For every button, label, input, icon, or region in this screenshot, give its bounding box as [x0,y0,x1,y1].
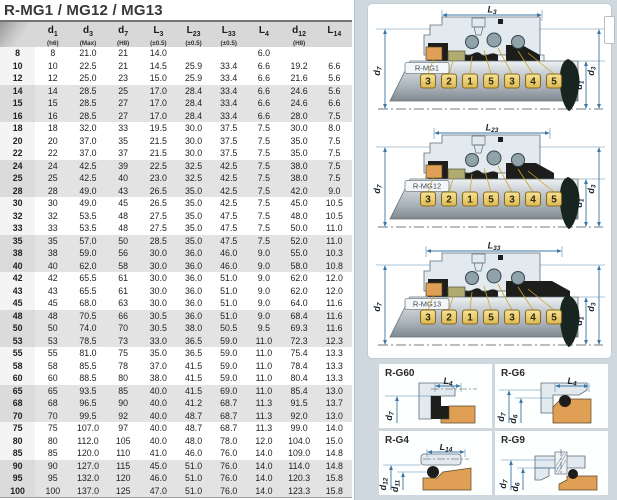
table-cell: 92 [106,410,141,423]
table-cell: 14.0 [246,485,281,498]
table-section: R-MG1 / MG12 / MG13 d1(h6)d3(Max)d7(H8)L… [0,0,354,500]
table-cell: 53 [0,335,35,348]
table-cell: 12 [0,72,35,85]
table-cell: 32.5 [176,160,211,173]
table-cell: 7.5 [246,122,281,135]
table-cell: 93.5 [70,385,105,398]
table-cell: 42.0 [282,185,317,198]
table-cell: 9.0 [246,285,281,298]
table-cell: 11.0 [246,335,281,348]
table-cell: 7.5 [246,185,281,198]
table-row: 606088.58038.041.559.011.080.413.3 [0,372,352,385]
table-cell: 14.0 [246,472,281,485]
table-cell: 76.0 [211,472,246,485]
table-cell: 6.6 [317,60,352,73]
table-cell: 99.5 [70,410,105,423]
column-header: d1(h6) [35,22,70,47]
table-cell: 42.5 [70,160,105,173]
table-cell: 9.0 [317,185,352,198]
part-number: 3 [425,195,431,206]
table-cell: 12.3 [317,335,352,348]
table-cell: 40 [106,172,141,185]
table-cell: 33.4 [211,110,246,123]
table-cell: 27.5 [141,222,176,235]
table-row: 383859.05630.036.046.09.055.010.3 [0,247,352,260]
table-cell: 27 [106,110,141,123]
table-cell: 60 [35,372,70,385]
table-cell: 22 [35,147,70,160]
top-dim-label: L23 [485,123,498,134]
table-cell: 21.6 [282,72,317,85]
table-cell [211,47,246,60]
table-cell: 48.7 [176,410,211,423]
table-cell: 97 [106,422,141,435]
table-cell: 48.7 [176,422,211,435]
table-cell: 15 [35,97,70,110]
table-cell: 20 [0,135,35,148]
table-cell: 14.5 [141,60,176,73]
seat-card-r-g6: R-G6 L4 d7 d6 [495,364,608,428]
table-cell: 74.0 [70,322,105,335]
table-cell: 68.0 [70,297,105,310]
table-cell: 28.0 [282,110,317,123]
svg-text:L4: L4 [443,377,453,387]
table-cell: 35.0 [176,222,211,235]
table-cell: 30.0 [176,122,211,135]
svg-text:d3: d3 [586,184,598,194]
column-header: L3(±0.5) [141,22,176,47]
table-row: 8080112.010540.048.078.012.0104.015.0 [0,435,352,448]
table-cell: 5.6 [317,72,352,85]
table-cell: 70 [35,410,70,423]
table-cell: 15 [0,97,35,110]
table-cell: 9.0 [246,310,281,323]
svg-text:d7: d7 [496,412,508,422]
table-cell: 76.0 [211,447,246,460]
table-cell: 85 [0,447,35,460]
table-row: 9090127.011545.051.076.014.0114.014.8 [0,460,352,473]
table-cell: 22.5 [141,160,176,173]
table-cell: 12.0 [317,272,352,285]
table-cell: 51.0 [211,285,246,298]
table-cell: 28 [35,185,70,198]
table-cell: 41.5 [176,372,211,385]
table-cell: 13.0 [317,410,352,423]
table-cell: 14 [0,85,35,98]
table-row: 323253.54827.535.047.57.548.010.5 [0,210,352,223]
svg-text:d6: d6 [510,482,522,492]
table-body: 8821.02114.06.0101022.52114.525.933.46.6… [0,47,352,498]
table-row: 100100137.012547.051.076.014.0123.315.8 [0,485,352,498]
table-cell: 68.7 [211,410,246,423]
table-cell: 12.0 [246,435,281,448]
table-cell: 35.0 [176,235,211,248]
table-cell: 46.0 [211,247,246,260]
table-cell: 35.0 [176,185,211,198]
table-cell: 15.8 [317,472,352,485]
table-cell: 68.7 [211,397,246,410]
table-row: 505074.07030.538.050.59.569.311.6 [0,322,352,335]
column-header: L33(±0.5) [211,22,246,47]
table-cell: 59.0 [211,360,246,373]
table-cell: 9.0 [246,247,281,260]
table-cell: 7.5 [246,172,281,185]
table-cell: 90 [0,460,35,473]
table-cell: 45.0 [141,460,176,473]
table-cell [317,47,352,60]
table-row: 141428.52517.028.433.46.624.65.6 [0,85,352,98]
table-cell: 38.0 [176,322,211,335]
table-cell: 27 [106,97,141,110]
table-cell: 80.4 [282,372,317,385]
table-cell: 19.2 [282,60,317,73]
table-cell: 17.0 [141,110,176,123]
table-cell: 50.0 [282,222,317,235]
part-number: 1 [467,77,473,88]
table-cell: 42.5 [211,172,246,185]
table-cell: 46.0 [141,472,176,485]
table-cell: 110 [106,447,141,460]
table-cell: 40 [35,260,70,273]
table-cell: 11.0 [317,235,352,248]
table-cell: 58 [106,260,141,273]
column-header [0,22,35,47]
table-cell: 61 [106,285,141,298]
svg-text:d6: d6 [508,414,520,424]
part-number: 3 [509,195,515,206]
table-cell: 28.5 [141,235,176,248]
table-cell: 24.6 [282,85,317,98]
table-cell: 25.9 [176,60,211,73]
table-cell: 33 [0,222,35,235]
table-cell: 30.0 [141,247,176,260]
table-row: 303049.04526.535.042.57.545.010.5 [0,197,352,210]
table-row: 333353.54827.535.047.57.550.011.0 [0,222,352,235]
table-cell: 21 [106,60,141,73]
table-cell: 7.5 [246,147,281,160]
table-cell: 69.0 [211,385,246,398]
table-cell: 13.3 [317,372,352,385]
table-cell: 95 [0,472,35,485]
table-cell: 38.0 [141,372,176,385]
table-cell: 95 [35,472,70,485]
table-row: 8821.02114.06.0 [0,47,352,60]
table-cell: 48 [106,222,141,235]
table-cell: 38 [35,247,70,260]
table-cell: 51.0 [211,310,246,323]
table-cell: 11.0 [246,385,281,398]
table-cell: 68 [35,397,70,410]
table-cell: 14.0 [246,460,281,473]
table-cell: 32 [0,210,35,223]
table-row: 7575107.09740.048.768.711.399.014.0 [0,422,352,435]
table-cell: 36.0 [176,285,211,298]
table-row: 222237.03721.530.037.57.535.07.5 [0,147,352,160]
table-cell: 59.0 [70,247,105,260]
seat-card-r-g9: R-G9 d7 d6 [495,431,608,495]
table-cell: 80 [0,435,35,448]
table-cell: 33.4 [211,72,246,85]
table-cell: 30.0 [176,135,211,148]
table-cell: 12 [35,72,70,85]
table-cell: 15.0 [317,435,352,448]
table-cell: 6.6 [246,85,281,98]
table-cell: 10.5 [317,210,352,223]
column-header: L23(±0.5) [176,22,211,47]
table-cell: 30.0 [141,297,176,310]
table-cell: 75 [0,422,35,435]
column-header: L14 [317,22,352,47]
table-row: 252542.54023.032.542.57.538.07.5 [0,172,352,185]
part-number: 5 [551,313,557,324]
table-cell: 28 [0,185,35,198]
table-cell: 47.5 [211,210,246,223]
table-cell: 19.5 [141,122,176,135]
table-cell: 46.0 [176,447,211,460]
table-cell: 99.0 [282,422,317,435]
table-cell: 50 [106,235,141,248]
table-cell: 30.0 [282,122,317,135]
table-cell: 112.0 [70,435,105,448]
table-cell: 16 [0,110,35,123]
table-cell: 37.0 [70,135,105,148]
table-cell: 22 [0,147,35,160]
part-number: 3 [509,77,515,88]
table-cell: 41.5 [176,360,211,373]
catalog-page: R-MG1 / MG12 / MG13 d1(h6)d3(Max)d7(H8)L… [0,0,617,500]
table-cell: 90 [35,460,70,473]
table-cell: 59.0 [211,372,246,385]
table-cell: 123.3 [282,485,317,498]
table-cell: 65 [35,385,70,398]
table-cell: 30.5 [141,310,176,323]
table-cell: 100 [0,485,35,498]
table-cell: 56 [106,247,141,260]
table-cell: 127.0 [70,460,105,473]
table-row: 202037.03521.530.037.57.535.07.5 [0,135,352,148]
table-cell: 60 [0,372,35,385]
table-cell: 53.5 [70,222,105,235]
table-cell: 137.0 [70,485,105,498]
table-cell: 50 [0,322,35,335]
table-cell: 9.0 [246,272,281,285]
seal-diagram-r-mg13: R-MG13 3215345 L33 d7 d1 d3 [372,241,608,358]
table-cell: 36.0 [176,260,211,273]
table-cell: 49.0 [70,197,105,210]
diagram-label: R-MG12 [412,182,440,191]
table-cell: 33.4 [211,97,246,110]
table-cell: 68 [0,397,35,410]
table-cell: 65.5 [70,285,105,298]
table-cell: 10 [35,60,70,73]
table-row: 121225.02315.025.933.46.621.65.6 [0,72,352,85]
table-cell: 70 [106,322,141,335]
table-cell: 100 [35,485,70,498]
table-cell: 28.5 [70,85,105,98]
table-cell: 28.5 [70,97,105,110]
table-cell: 11.0 [246,372,281,385]
table-cell: 40.0 [141,422,176,435]
table-cell: 17.0 [141,85,176,98]
table-cell: 40.0 [141,435,176,448]
table-cell: 14.0 [317,422,352,435]
table-cell: 7.5 [246,160,281,173]
table-cell: 21 [106,47,141,60]
table-cell: 40.0 [141,385,176,398]
table-cell: 15.8 [317,485,352,498]
table-cell: 40.0 [141,397,176,410]
table-cell: 33.0 [141,335,176,348]
table-cell: 36.5 [176,335,211,348]
table-cell: 36.0 [176,272,211,285]
table-row: 161628.52717.028.433.46.628.07.5 [0,110,352,123]
table-cell: 42.5 [70,172,105,185]
table-cell: 51.0 [176,485,211,498]
table-cell: 26.5 [141,185,176,198]
table-cell: 11.3 [246,397,281,410]
table-row: 454568.06330.036.051.09.064.011.6 [0,297,352,310]
table-cell: 10 [0,60,35,73]
table-cell: 13.0 [317,385,352,398]
table-cell: 96.5 [70,397,105,410]
table-cell: 7.5 [246,197,281,210]
table-cell: 62.0 [70,260,105,273]
column-header: d7(H8) [106,22,141,47]
table-cell: 8.0 [317,122,352,135]
table-row: 404062.05830.036.046.09.058.010.8 [0,260,352,273]
table-cell: 6.6 [246,60,281,73]
table-cell: 114.0 [282,460,317,473]
part-number: 5 [488,195,494,206]
table-cell: 36.0 [176,247,211,260]
table-cell: 48.0 [282,210,317,223]
table-cell: 10.5 [317,197,352,210]
table-cell: 65 [0,385,35,398]
table-cell: 9.0 [246,260,281,273]
table-cell: 48 [35,310,70,323]
table-cell: 18 [0,122,35,135]
table-cell: 104.0 [282,435,317,448]
table-cell: 46.0 [211,260,246,273]
table-cell: 11.0 [317,222,352,235]
table-cell: 36.0 [176,297,211,310]
table-cell: 35.0 [282,135,317,148]
table-cell: 11.0 [246,347,281,360]
table-cell: 33.4 [211,60,246,73]
part-number: 4 [530,77,536,88]
table-cell: 40 [0,260,35,273]
table-cell: 65.5 [70,272,105,285]
part-number: 2 [446,313,452,324]
table-cell: 68.7 [211,422,246,435]
table-cell: 92.0 [282,410,317,423]
table-cell: 69.3 [282,322,317,335]
table-cell: 72.3 [282,335,317,348]
table-cell: 7.5 [246,135,281,148]
table-row: 151528.52717.028.433.46.624.66.6 [0,97,352,110]
part-number: 3 [425,77,431,88]
table-cell: 24.6 [282,97,317,110]
table-cell: 36.0 [176,310,211,323]
table-cell: 27.5 [141,210,176,223]
table-cell: 76.0 [211,485,246,498]
table-cell: 13.3 [317,360,352,373]
table-cell: 35.0 [176,210,211,223]
table-cell: 75 [35,422,70,435]
table-cell: 90 [106,397,141,410]
table-cell: 85 [35,447,70,460]
table-cell: 40.0 [141,410,176,423]
table-cell: 85.5 [70,360,105,373]
table-cell: 18 [35,122,70,135]
table-cell: 20 [35,135,70,148]
table-cell: 9.0 [246,297,281,310]
table-cell: 35 [35,235,70,248]
table-cell [176,47,211,60]
table-cell: 25 [106,85,141,98]
table-cell: 7.5 [317,160,352,173]
table-cell: 88.5 [70,372,105,385]
svg-text:d7: d7 [372,302,384,312]
seat-card-r-g60: R-G60 L4 d7 [379,364,492,428]
table-cell: 25 [35,172,70,185]
table-cell: 11.3 [246,410,281,423]
table-cell: 21.0 [70,47,105,60]
table-row: 707099.59240.048.768.711.392.013.0 [0,410,352,423]
table-cell: 45 [0,297,35,310]
table-cell: 78.4 [282,360,317,373]
column-header: L4 [246,22,281,47]
table-cell: 32.5 [176,172,211,185]
table-cell: 32.0 [70,122,105,135]
table-cell: 37 [106,147,141,160]
table-cell: 41.5 [176,385,211,398]
table-cell: 80 [35,435,70,448]
table-cell: 30.5 [141,322,176,335]
part-number: 1 [467,313,473,324]
table-cell: 28.5 [70,110,105,123]
table-row: 242442.53922.532.542.57.538.07.5 [0,160,352,173]
table-cell: 42 [0,272,35,285]
table-cell: 35 [0,235,35,248]
diagram-label: R-MG1 [414,64,438,73]
part-number: 4 [530,313,536,324]
table-cell: 132.0 [70,472,105,485]
table-row: 686896.59040.041.268.711.391.513.7 [0,397,352,410]
table-cell: 28.4 [176,85,211,98]
table-cell: 37.5 [211,122,246,135]
table-cell: 30 [35,197,70,210]
table-cell: 66 [106,310,141,323]
part-number: 3 [425,313,431,324]
table-cell: 30.0 [141,272,176,285]
table-cell: 13.3 [317,347,352,360]
table-cell: 57.0 [70,235,105,248]
table-cell: 9.5 [246,322,281,335]
table-cell: 26.5 [141,197,176,210]
table-cell: 33.4 [211,85,246,98]
table-cell: 7.5 [317,147,352,160]
table-cell: 15.0 [141,72,176,85]
seal-diagram-r-mg12: R-MG12 3215345 L23 d7 d1 d3 [372,123,608,240]
svg-text:d12: d12 [379,477,390,490]
table-row: 484870.56630.536.051.09.068.411.6 [0,310,352,323]
table-cell: 8 [35,47,70,60]
table-cell: 51.0 [211,297,246,310]
table-cell: 70.5 [70,310,105,323]
part-number: 4 [530,195,536,206]
table-cell: 64.0 [282,297,317,310]
